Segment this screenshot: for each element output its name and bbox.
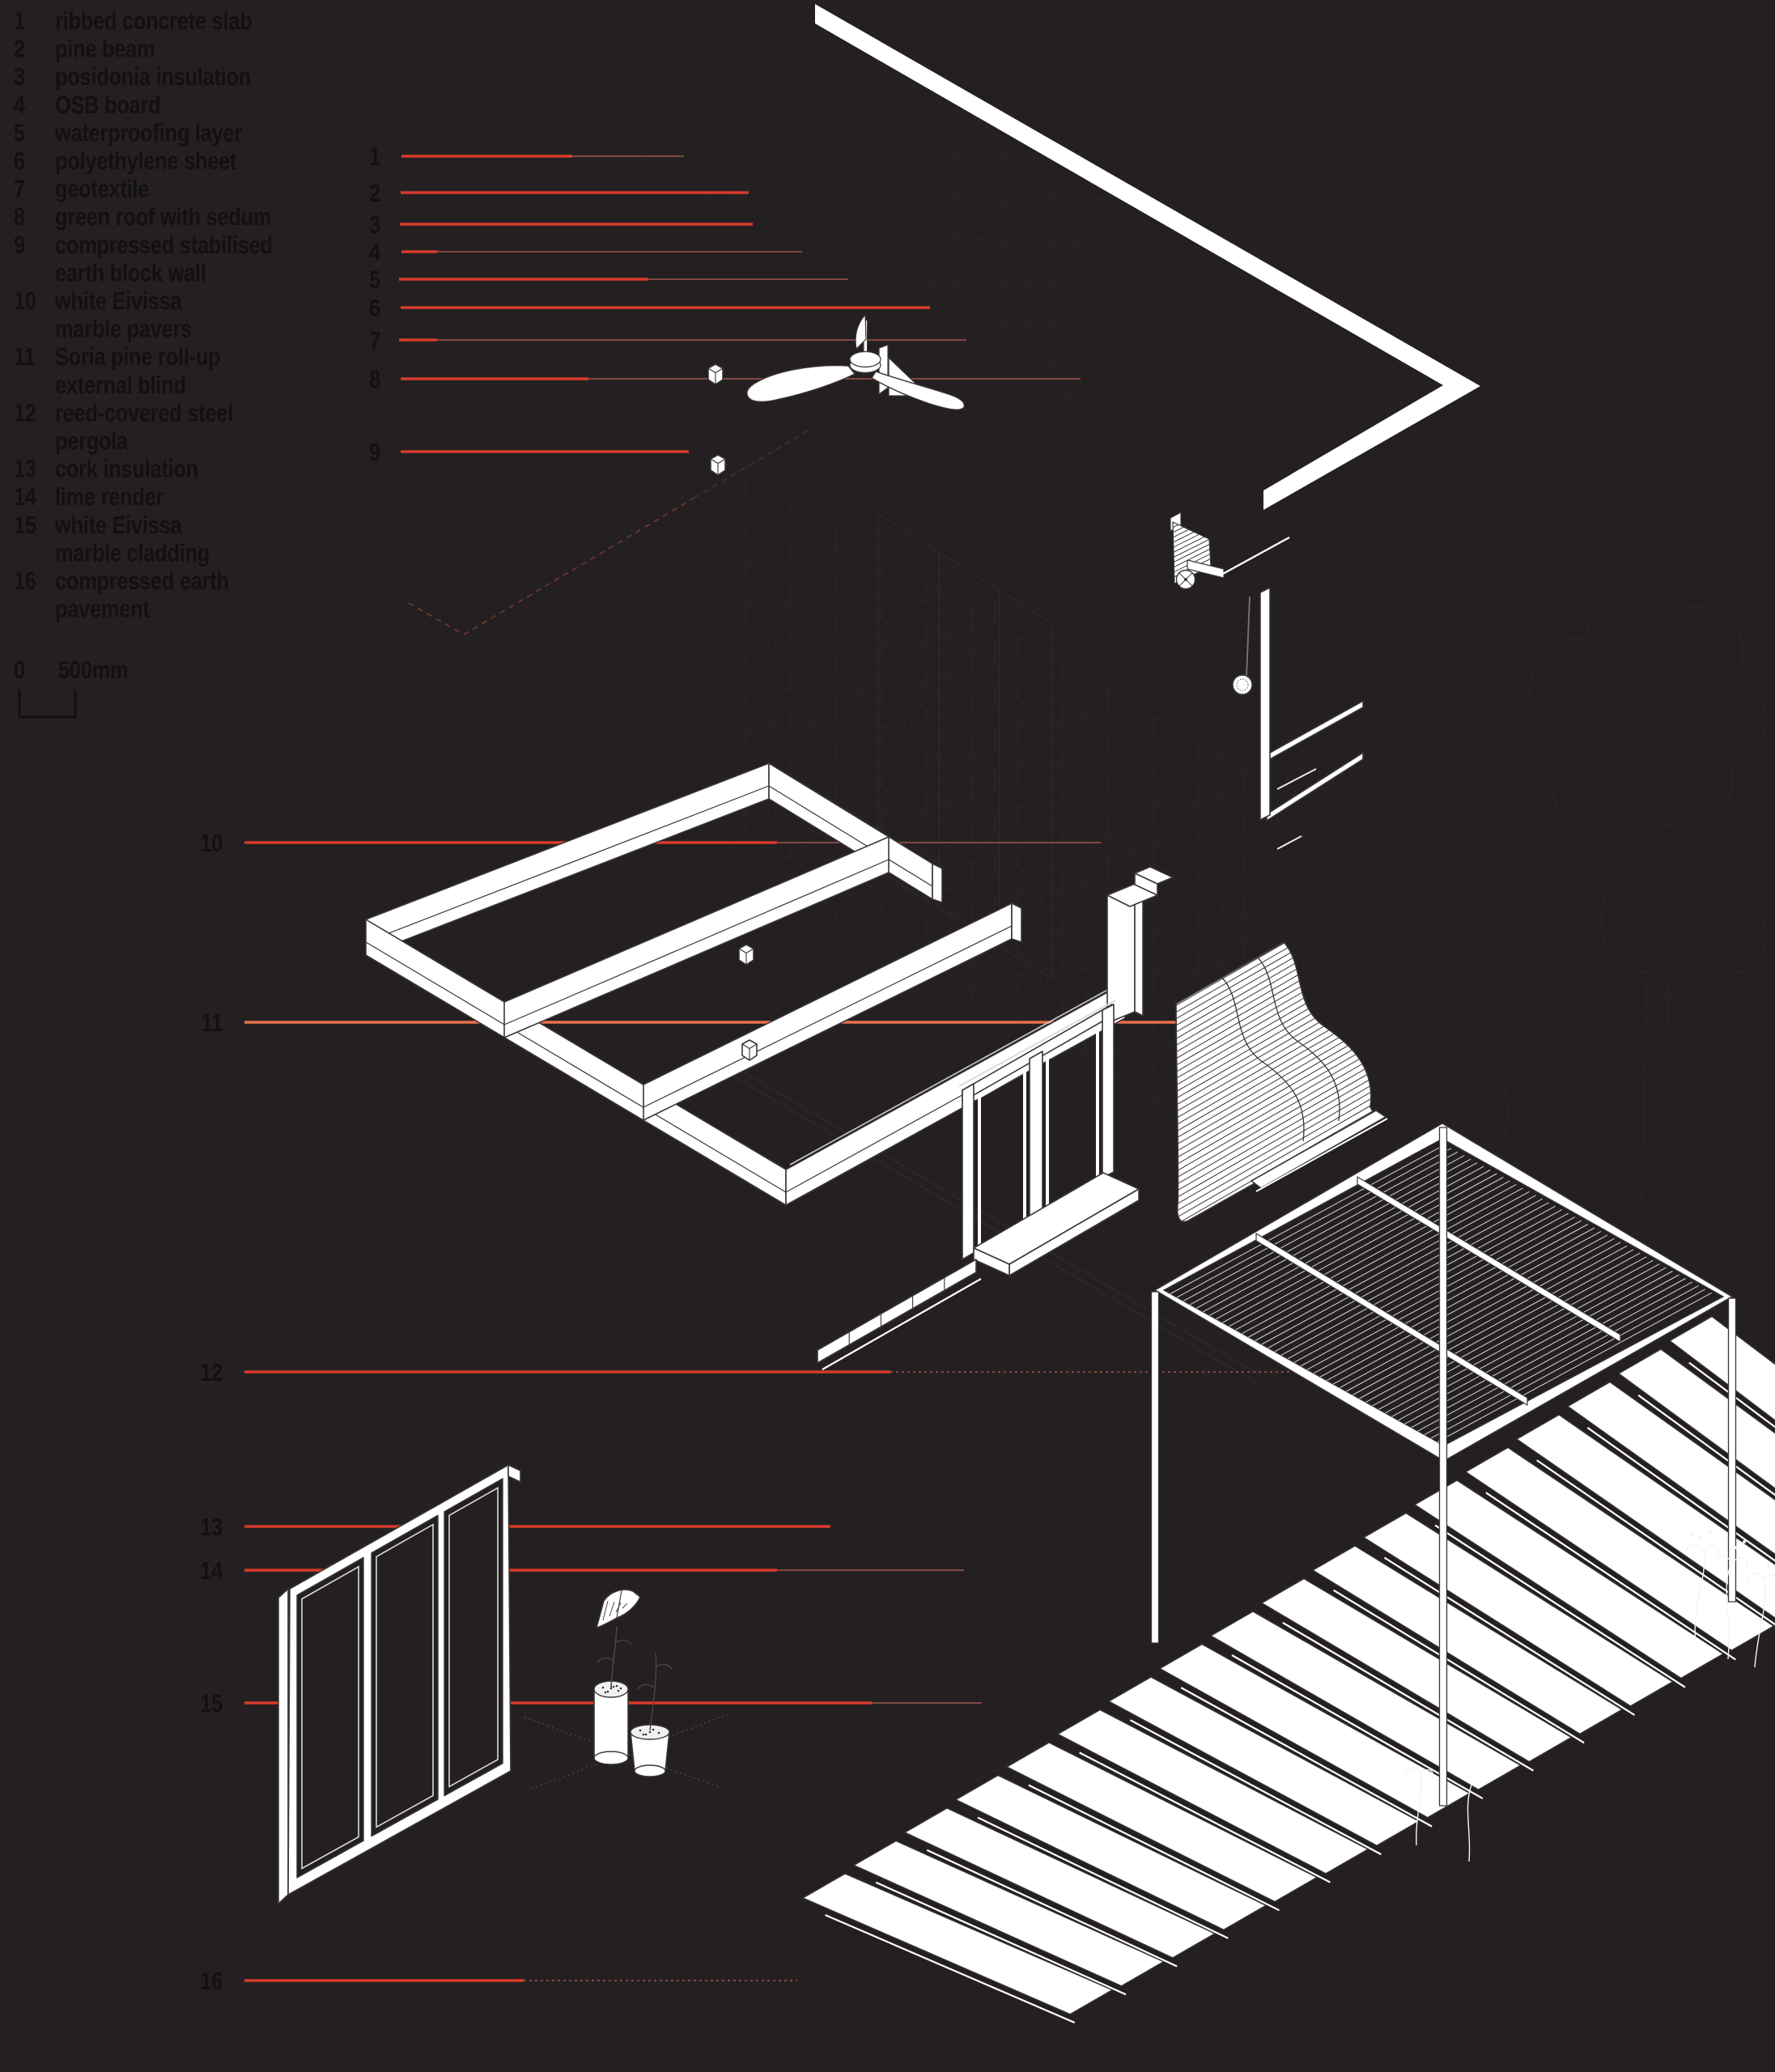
svg-text:2: 2 [14,35,25,63]
svg-text:13: 13 [200,1514,223,1542]
svg-text:compressed earth: compressed earth [55,567,229,596]
svg-text:11: 11 [14,343,35,372]
svg-text:12: 12 [200,1359,223,1387]
svg-text:cork insulation: cork insulation [55,455,198,483]
svg-text:5: 5 [369,266,380,295]
svg-text:13: 13 [14,455,36,483]
svg-text:marble pavers: marble pavers [55,315,192,343]
svg-text:white Eivissa: white Eivissa [54,511,182,539]
svg-text:15: 15 [14,511,36,539]
svg-text:earth block wall: earth block wall [55,259,206,287]
svg-text:ribbed concrete slab: ribbed concrete slab [55,7,253,36]
svg-text:10: 10 [14,287,36,316]
svg-text:16: 16 [14,567,36,596]
svg-text:pine beam: pine beam [55,35,155,63]
svg-text:marble cladding: marble cladding [55,539,210,567]
svg-text:16: 16 [200,1968,223,1996]
svg-text:14: 14 [200,1557,223,1586]
svg-text:6: 6 [369,295,380,323]
svg-text:compressed stabilised: compressed stabilised [55,231,273,259]
svg-text:white Eivissa: white Eivissa [54,287,182,316]
svg-text:9: 9 [14,231,25,259]
svg-text:10: 10 [200,830,223,858]
svg-text:waterproofing layer: waterproofing layer [54,119,242,147]
svg-text:OSB board: OSB board [55,91,160,119]
svg-text:4: 4 [14,91,25,119]
svg-text:posidonia insulation: posidonia insulation [55,63,251,91]
svg-text:8: 8 [14,203,25,231]
svg-text:Soria pine roll-up: Soria pine roll-up [55,343,220,372]
svg-text:7: 7 [14,175,25,203]
svg-text:3: 3 [369,211,380,240]
svg-text:green roof with sedum: green roof with sedum [55,203,271,231]
svg-text:5: 5 [14,119,25,147]
svg-text:12: 12 [14,399,36,427]
svg-text:2: 2 [369,180,380,208]
svg-text:1: 1 [14,7,25,36]
svg-text:500mm: 500mm [58,656,128,685]
svg-text:9: 9 [369,439,380,467]
svg-text:lime render: lime render [55,483,163,512]
svg-text:3: 3 [14,63,25,91]
svg-text:polyethylene sheet: polyethylene sheet [55,147,237,176]
svg-text:8: 8 [369,366,380,394]
svg-text:external blind: external blind [55,371,186,399]
svg-text:11: 11 [202,1009,223,1038]
svg-text:15: 15 [200,1690,223,1718]
svg-text:geotextile: geotextile [55,175,149,203]
svg-text:pavement: pavement [55,595,150,623]
svg-text:6: 6 [14,147,25,176]
svg-text:1: 1 [369,143,380,172]
svg-text:14: 14 [14,483,36,512]
svg-text:4: 4 [369,239,380,267]
svg-text:7: 7 [369,327,380,355]
svg-text:0: 0 [14,656,25,685]
svg-text:pergola: pergola [55,427,128,456]
svg-text:reed-covered steel: reed-covered steel [55,399,233,427]
